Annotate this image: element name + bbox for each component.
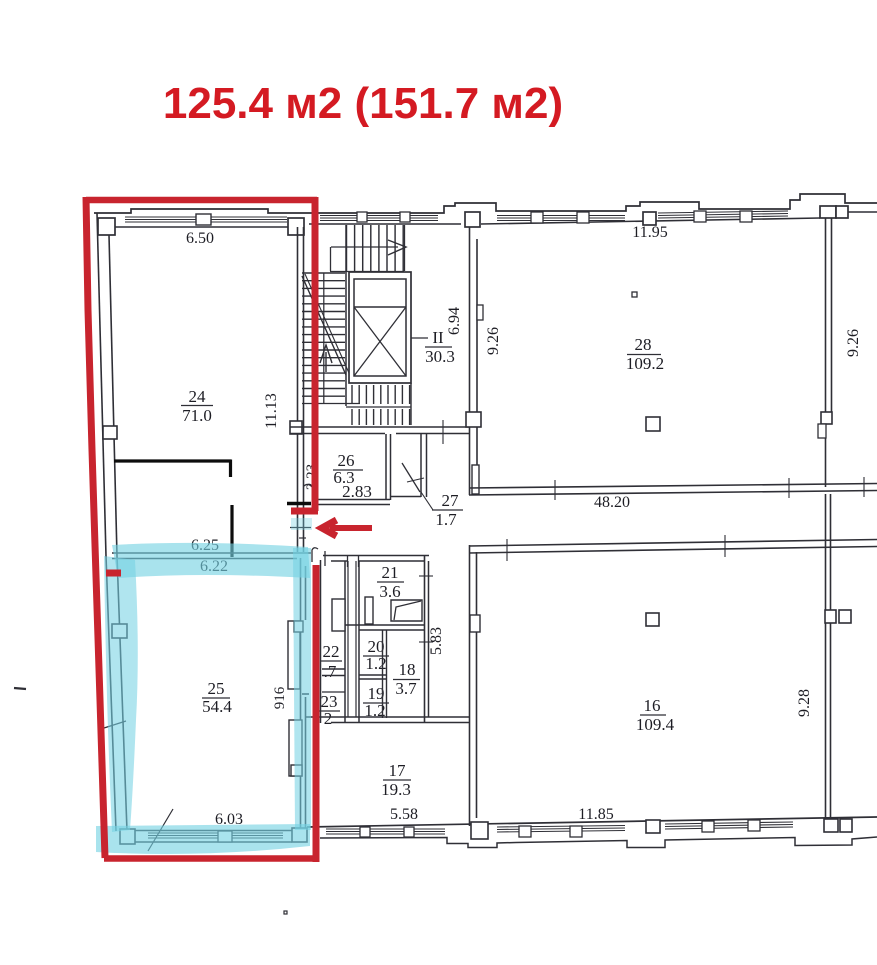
svg-text:3.7: 3.7 — [395, 679, 417, 698]
svg-text:11.13: 11.13 — [263, 393, 280, 428]
svg-text:1.7: 1.7 — [435, 510, 457, 529]
svg-text:2.83: 2.83 — [342, 482, 372, 501]
svg-text:30.3: 30.3 — [425, 347, 455, 366]
svg-text:11.85: 11.85 — [578, 806, 613, 823]
svg-text:3.6: 3.6 — [379, 582, 400, 601]
svg-text:28: 28 — [635, 335, 652, 354]
svg-text:54.4: 54.4 — [202, 697, 232, 716]
svg-text:27: 27 — [442, 491, 460, 510]
svg-text:16: 16 — [644, 696, 661, 715]
svg-text:11.95: 11.95 — [632, 224, 667, 241]
svg-text:2: 2 — [324, 709, 333, 728]
svg-text:5.83: 5.83 — [428, 627, 445, 655]
svg-text:6.50: 6.50 — [186, 230, 214, 247]
svg-text:21: 21 — [382, 563, 399, 582]
svg-text:71.0: 71.0 — [182, 406, 212, 425]
svg-text:9.26: 9.26 — [485, 327, 502, 355]
svg-text:II: II — [432, 328, 444, 347]
svg-text:109.4: 109.4 — [636, 715, 675, 734]
svg-text:25: 25 — [208, 679, 225, 698]
svg-text:.7: .7 — [324, 662, 337, 681]
svg-text:5.58: 5.58 — [390, 806, 418, 823]
svg-text:6.94: 6.94 — [446, 307, 463, 335]
svg-text:48.20: 48.20 — [594, 494, 630, 511]
svg-text:109.2: 109.2 — [626, 354, 664, 373]
svg-text:22: 22 — [323, 642, 340, 661]
svg-text:9.26: 9.26 — [845, 329, 862, 357]
svg-text:9.28: 9.28 — [796, 689, 813, 717]
svg-text:1.2: 1.2 — [365, 654, 386, 673]
svg-text:24: 24 — [189, 387, 207, 406]
svg-text:17: 17 — [389, 761, 407, 780]
svg-text:19.3: 19.3 — [381, 780, 411, 799]
svg-text:916: 916 — [272, 686, 288, 709]
svg-text:18: 18 — [399, 660, 416, 679]
svg-text:125.4 м2 (151.7 м2): 125.4 м2 (151.7 м2) — [163, 79, 563, 128]
